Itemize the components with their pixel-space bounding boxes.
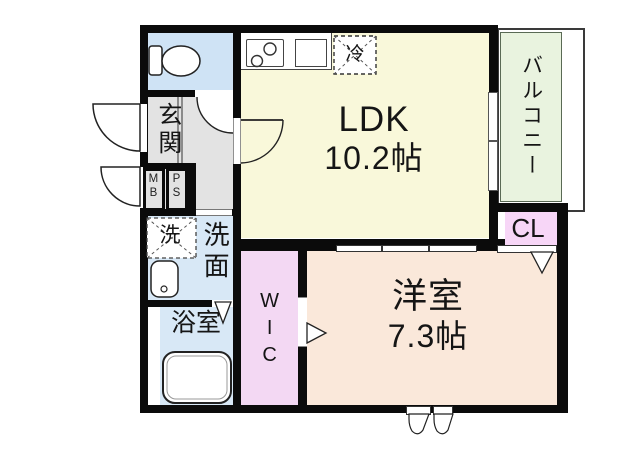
- meter-door-opening: [138, 167, 143, 208]
- pipe-space-label: PS: [170, 173, 182, 207]
- balcony-door-swing-icon: [434, 414, 453, 434]
- sliding-door-tick: [381, 246, 383, 251]
- ldk-size-label: 10.2帖: [294, 144, 454, 172]
- ldk-label: LDK: [294, 106, 454, 134]
- wic-door-opening: [298, 297, 307, 347]
- door-swing-icon: [101, 167, 140, 206]
- wall: [140, 25, 497, 33]
- sliding-door: [336, 245, 477, 252]
- closet-label: CL: [505, 214, 551, 242]
- stove-icon: [246, 39, 284, 67]
- western-room-size-label: 7.3帖: [348, 322, 508, 350]
- toilet-door-opening: [195, 90, 233, 97]
- wall: [557, 203, 568, 413]
- entrance-door-opening: [139, 104, 147, 152]
- meter-box-label: MB: [147, 173, 159, 207]
- wic-label: WIC: [258, 290, 280, 378]
- entrance-label: 玄関: [154, 102, 180, 162]
- wall: [140, 25, 148, 413]
- door-swing-icon: [93, 104, 140, 151]
- washroom-door-opening: [196, 209, 232, 216]
- ldk-door-opening: [233, 118, 241, 164]
- bathroom-label: 浴室: [157, 310, 235, 336]
- washer-label: 洗: [156, 224, 184, 248]
- refrigerator-label: 冷: [343, 44, 367, 66]
- wall: [140, 405, 568, 413]
- kitchen-sink-icon: [295, 39, 327, 67]
- room-toilet: [147, 33, 233, 90]
- balcony-label: バルコニー: [519, 54, 542, 204]
- balcony-door-swing-icon: [409, 414, 429, 434]
- balcony-door-panel: [433, 406, 453, 415]
- washroom-label: 洗面: [201, 221, 229, 295]
- floor-plan: LDK 10.2帖 洋室 7.3帖 バルコニー CL WIC 玄関 洗面 浴室 …: [0, 0, 640, 455]
- wall: [233, 25, 241, 413]
- bathroom-door-opening: [212, 300, 233, 307]
- sliding-door-tick: [428, 246, 430, 251]
- western-room-label: 洋室: [348, 283, 508, 311]
- closet-door-panel: [497, 245, 557, 253]
- balcony-door-panel: [406, 406, 431, 415]
- balcony-window-divider: [489, 140, 497, 142]
